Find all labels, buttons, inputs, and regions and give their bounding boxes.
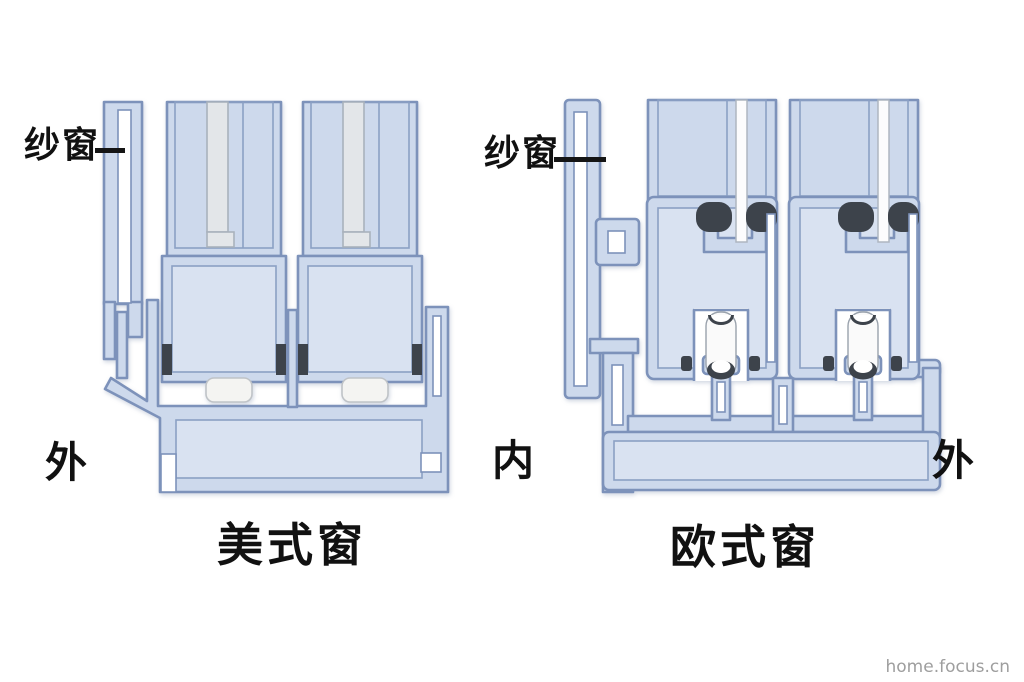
glass-pane — [343, 102, 364, 232]
window-comparison-diagram: 纱窗 纱窗 外 内 外 美式窗 欧式窗 home.focus.cn — [0, 0, 1024, 682]
american-sash-profile — [298, 102, 422, 402]
sash-roller — [706, 312, 736, 380]
caption-american-window: 美式窗 — [197, 522, 387, 568]
glazing-gasket — [838, 202, 874, 232]
glass-pane — [736, 100, 747, 242]
weather-seal — [412, 344, 422, 375]
caption-european-window: 欧式窗 — [650, 524, 840, 570]
weather-seal — [162, 344, 172, 375]
outside-label-european: 外 — [932, 440, 974, 482]
glide-shoe — [206, 378, 252, 402]
leader-line — [554, 157, 606, 162]
watermark: home.focus.cn — [886, 657, 1011, 677]
inside-label-european: 内 — [492, 440, 534, 482]
glide-shoe — [342, 378, 388, 402]
weather-seal — [276, 344, 286, 375]
sash-roller — [848, 312, 878, 380]
glazing-gasket — [696, 202, 732, 232]
glass-pane — [878, 100, 889, 242]
screen-label-european: 纱窗 — [484, 136, 560, 172]
screen-label-american: 纱窗 — [24, 128, 100, 164]
american-window-diagram — [104, 102, 448, 492]
american-sash-profile — [162, 102, 286, 402]
profile-cross-sections — [0, 0, 1024, 682]
european-window-diagram — [565, 100, 940, 492]
leader-line — [95, 148, 125, 153]
outside-label-american: 外 — [45, 442, 87, 484]
glass-pane — [207, 102, 228, 232]
weather-seal — [298, 344, 308, 375]
